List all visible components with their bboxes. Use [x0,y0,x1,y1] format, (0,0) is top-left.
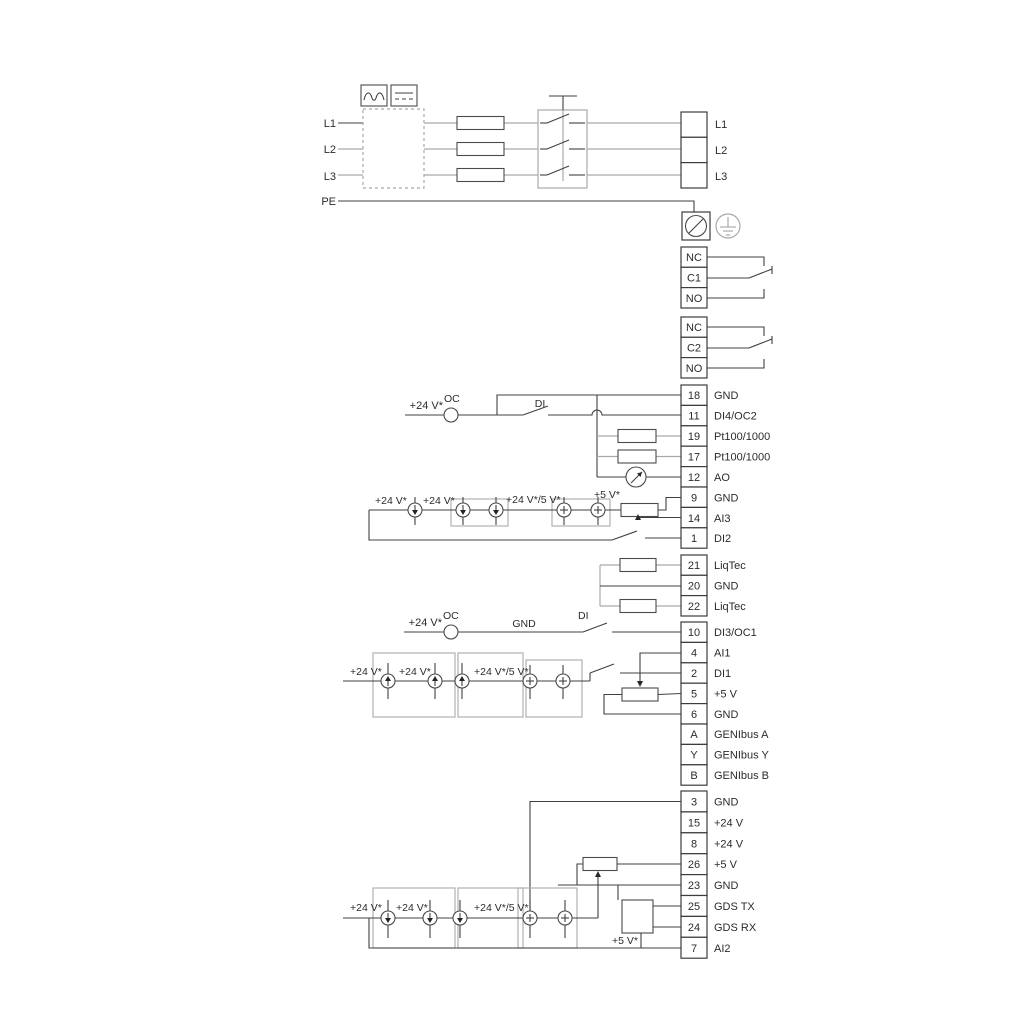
terminal-label: DI1 [714,668,731,680]
supply-24v-label-4: +24 V* [399,666,431,678]
analog-output-meter-icon [597,467,681,487]
terminal-number: 18 [688,390,700,402]
di-out-wire-hop [548,410,681,415]
upper-io-section: +24 V* OC DI +24 V* [369,385,770,548]
relay2-nc-label: NC [686,322,702,334]
terminal-number: 9 [691,493,697,505]
di1-switch-blade [590,664,614,673]
terminal-label: GDS RX [714,922,757,934]
terminal-number: 1 [691,533,697,545]
terminal-number: 21 [688,560,700,572]
terminal-label: +24 V [714,818,744,830]
relay-2: NC C2 NO [681,317,772,378]
terminal-number: B [690,770,697,782]
terminal-label: GENIbus A [714,729,769,741]
current-sink-icon [489,503,503,517]
liqtec-sensor-1 [620,559,656,572]
terminal-number: 4 [691,648,697,660]
terminal-label: DI4/OC2 [714,411,757,423]
terminal-number: 15 [688,818,700,830]
terminal-label: GND [714,390,739,402]
potentiometer-bottom [577,858,681,886]
terminal-label: +5 V [714,859,738,871]
voltage-source-icon [556,674,570,688]
di-label-2: DI [578,610,589,622]
terminal-label: +24 V [714,839,744,851]
power-in-pe-label: PE [321,196,336,208]
supply-24v-label-1: +24 V* [375,495,407,507]
open-collector-icon [444,625,458,639]
relay1-nc-wire [707,257,764,266]
terminal-number: 3 [691,797,697,809]
di3-switch-blade [583,623,607,632]
oc-supply-label-2: +24 V* [409,617,443,629]
supply-24v-5v-label: +24 V*/5 V* [506,494,561,506]
terminal-number: 19 [688,431,700,443]
terminal-number: 6 [691,709,697,721]
current-sink-icon [381,911,395,925]
wiring-diagram: L1 L2 L3 PE [0,0,1024,1024]
terminal-label: GENIbus Y [714,750,769,762]
relay1-contact-blade [749,269,772,278]
relay1-no-wire [707,289,764,298]
terminal-label: AO [714,472,730,484]
earth-icon [716,214,740,238]
fuse-l2 [424,143,538,156]
terminal-label: Pt100/1000 [714,452,770,464]
wiper-arrow-icon [637,681,643,687]
gnd-label: GND [512,618,536,630]
supply-24v-label-5: +24 V* [350,902,382,914]
terminal-number: 20 [688,581,700,593]
terminal-label: GND [714,880,739,892]
terminal-label: GND [714,581,739,593]
terminal-number: 5 [691,689,697,701]
terminal-label: GND [714,493,739,505]
power-out-l2-label: L2 [715,145,727,157]
bottom-section: +5 V* +24 V* +24 V* +24 V*/5 V* [343,791,757,958]
pe-terminal-icon [682,212,710,240]
terminal-number: A [690,729,698,741]
oc-label: OC [444,393,460,405]
oc-label-2: OC [443,610,459,622]
relay1-nc-label: NC [686,252,702,264]
terminal-number: 7 [691,943,697,955]
terminal-number: 10 [688,627,700,639]
terminal-number: 26 [688,859,700,871]
terminal-label: GND [714,797,739,809]
relay1-no-label: NO [686,293,703,305]
power-in-l1-label: L1 [324,118,336,130]
terminal-block-mains: L1 L2 L3 [681,112,727,188]
current-sink-icon [456,503,470,517]
relay2-c-label: C2 [687,343,701,355]
dc-symbol-icon [391,85,417,106]
terminal-strip-liqtec: 21 20 22 LiqTec GND LiqTec [681,555,746,616]
di2-switch-blade [612,531,637,540]
terminal-number: 24 [688,922,700,934]
terminal-number: 8 [691,839,697,851]
terminal-number: 2 [691,668,697,680]
ac-symbol-icon [361,85,387,106]
power-out-l3-label: L3 [715,171,727,183]
supply-row-upper: +24 V* +24 V* +24 V*/5 V* +5 V* [369,489,681,540]
terminal-strip-upper: 18 11 19 17 12 9 14 1 GND DI4/OC2 Pt100/… [681,385,770,548]
current-source-icon [381,674,395,688]
terminal-number: 23 [688,880,700,892]
terminal-label: DI3/OC1 [714,627,757,639]
supply-24v-label-6: +24 V* [396,902,428,914]
relay-1: NC C1 NO [681,247,772,308]
terminal-label: AI3 [714,513,731,525]
terminal-label: Pt100/1000 [714,431,770,443]
liqtec-section: 21 20 22 LiqTec GND LiqTec [600,555,746,616]
current-sink-icon [408,503,422,517]
voltage-source-icon [523,674,537,688]
genibus-section: +24 V* OC GND DI +24 V* +24 V* +24 V*/5 … [343,610,769,785]
relay2-no-wire [707,359,764,368]
voltage-source-icon [558,911,572,925]
supply-24v-5v-label-2: +24 V*/5 V* [474,666,529,678]
current-source-icon [455,674,469,688]
current-source-icon [428,674,442,688]
supply-row-middle: +24 V* +24 V* +24 V*/5 V* [343,653,681,717]
supply-24v-5v-label-3: +24 V*/5 V* [474,902,529,914]
terminal-label: LiqTec [714,560,746,572]
pt100-sensor-1 [597,430,681,443]
terminal-number: 14 [688,513,700,525]
di-label: DI [535,398,546,410]
gnd3-wire [530,802,681,912]
supply-24v-label-3: +24 V* [350,666,382,678]
supply-bracket-5 [526,660,582,717]
voltage-source-icon [591,503,605,517]
terminal-label: GND [714,709,739,721]
current-sink-icon [453,911,467,925]
power-section: L1 L2 L3 PE [321,85,740,240]
terminal-label: AI1 [714,648,731,660]
liqtec-sensor-2 [620,600,656,613]
wiper-arrow-icon [595,871,601,877]
voltage-source-icon [523,911,537,925]
fuse-l3 [424,169,538,182]
terminal-label: GDS TX [714,901,755,913]
voltage-source-icon [557,503,571,517]
fuse-l1 [424,117,538,130]
gds-module-box [622,900,653,933]
supply-24v-label-2: +24 V* [423,495,455,507]
wire-pe [338,201,694,212]
terminal-number: 11 [688,411,699,423]
open-collector-icon [444,408,458,422]
pt100-sensor-2 [597,450,681,463]
current-sink-icon [423,911,437,925]
gds-module: +5 V* [612,885,681,948]
diagram-canvas: L1 L2 L3 PE [0,0,1024,1024]
power-in-l3-label: L3 [324,171,336,183]
terminal-strip-bottom: 3 15 8 26 23 25 24 7 GND +24 V +24 V +5 … [681,791,757,958]
relay2-nc-wire [707,327,764,336]
terminal-number: 12 [688,472,700,484]
oc-supply-label: +24 V* [410,400,444,412]
terminal-label: +5 V [714,689,738,701]
terminal-label: LiqTec [714,601,746,613]
terminal-strip-genibus: 10 4 2 5 6 A Y B DI3/OC1 AI1 DI1 +5 V GN… [681,622,769,785]
gds-5v-label: +5 V* [612,935,638,947]
power-in-l2-label: L2 [324,144,336,156]
main-switch [538,96,587,188]
potentiometer-middle [604,653,681,714]
terminal-number: 25 [688,901,700,913]
relay2-contact-blade [749,339,772,348]
di-box-top-wire [497,395,681,415]
power-out-l1-label: L1 [715,119,727,131]
terminal-label: GENIbus B [714,770,769,782]
relay2-no-label: NO [686,363,703,375]
terminal-label: AI2 [714,943,731,955]
terminal-label: DI2 [714,533,731,545]
rfi-filter-box [363,109,424,188]
terminal-number: 22 [688,601,700,613]
terminal-number: Y [690,750,698,762]
relay1-c-label: C1 [687,273,701,285]
terminal-number: 17 [688,452,700,464]
potentiometer-upper [621,498,681,521]
